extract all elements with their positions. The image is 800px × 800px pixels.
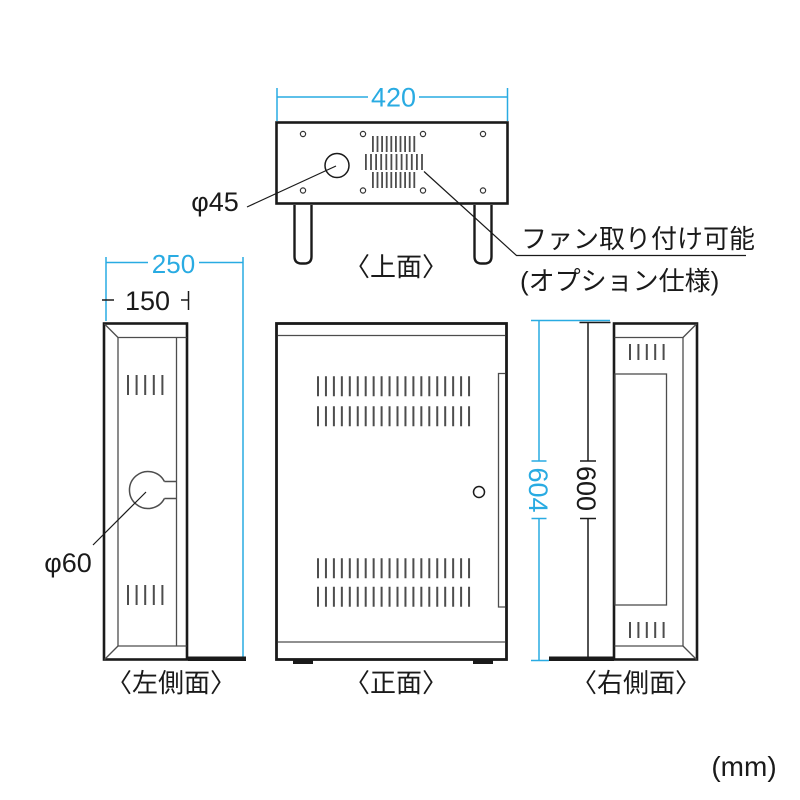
top-view-left-leg: [295, 205, 312, 264]
phi45-label: φ45: [191, 187, 239, 217]
cabinet-dimension-drawing: 420 φ45 ファン取り付け可能 (オプション仕様) 〈上面〉: [0, 0, 800, 800]
dim-width-420-label: 420: [371, 83, 416, 113]
dim-height-600: 600: [571, 323, 611, 659]
front-view-right-foot: [473, 660, 493, 665]
right-view-label: 〈右側面〉: [571, 668, 701, 698]
left-view-label: 〈左側面〉: [106, 668, 236, 698]
fan-note-line2: (オプション仕様): [520, 266, 719, 296]
dim-width-420: 420: [277, 83, 508, 122]
dim-height-604-label: 604: [523, 467, 553, 512]
phi60-label: φ60: [44, 548, 92, 578]
top-view-label: 〈上面〉: [344, 252, 448, 282]
front-view: 〈正面〉: [277, 324, 507, 699]
front-view-body: [277, 324, 507, 660]
dim-depth-150: 150: [102, 286, 189, 316]
top-view-right-leg: [475, 205, 492, 264]
left-view-base-plate: [188, 657, 246, 662]
dim-height-600-label: 600: [571, 466, 601, 511]
top-view: 420 φ45 ファン取り付け可能 (オプション仕様) 〈上面〉: [191, 83, 755, 297]
technical-drawing-page: 420 φ45 ファン取り付け可能 (オプション仕様) 〈上面〉: [0, 0, 800, 800]
unit-label: (mm): [711, 751, 776, 782]
right-view-base-plate: [549, 657, 614, 662]
dim-depth-150-label: 150: [125, 286, 170, 316]
dim-depth-250-label: 250: [152, 249, 195, 279]
left-side-view: 250 150 φ60: [44, 249, 246, 698]
front-view-label: 〈正面〉: [344, 668, 448, 698]
front-view-left-foot: [293, 660, 313, 665]
left-view-body: [104, 324, 187, 660]
right-side-view: 604 600 〈右側面〉: [523, 321, 701, 699]
fan-note-line1: ファン取り付け可能: [521, 224, 755, 254]
